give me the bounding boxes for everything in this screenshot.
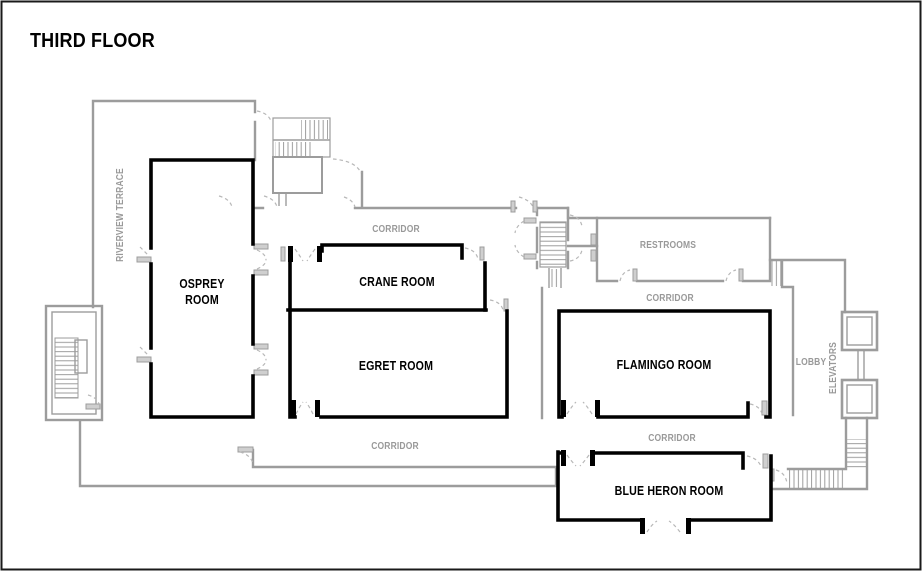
elevators-label: ELEVATORS	[827, 342, 838, 394]
restrooms-label: RESTROOMS	[640, 239, 696, 250]
corridor-label-restrooms: CORRIDOR	[646, 292, 694, 303]
lobby-label: LOBBY	[796, 356, 827, 367]
riverview-terrace-label: RIVERVIEW TERRACE	[114, 168, 125, 262]
room-flamingo-label: FLAMINGO ROOM	[617, 358, 712, 372]
floor-plan: THIRD FLOOR	[0, 0, 922, 571]
room-blue-heron-label: BLUE HERON ROOM	[615, 484, 724, 498]
corridor-label-upper: CORRIDOR	[372, 223, 420, 234]
floor-plan-page: THIRD FLOOR	[0, 0, 922, 571]
page-title: THIRD FLOOR	[30, 30, 155, 52]
page-title-text: THIRD FLOOR	[30, 30, 155, 52]
room-osprey-label-2: ROOM	[185, 293, 219, 307]
corridor-label-lower-left: CORRIDOR	[371, 440, 419, 451]
corridor-label-lower-right: CORRIDOR	[648, 432, 696, 443]
room-crane-label: CRANE ROOM	[359, 275, 434, 289]
room-osprey-label-1: OSPREY	[179, 277, 224, 291]
room-egret-label: EGRET ROOM	[359, 359, 433, 373]
